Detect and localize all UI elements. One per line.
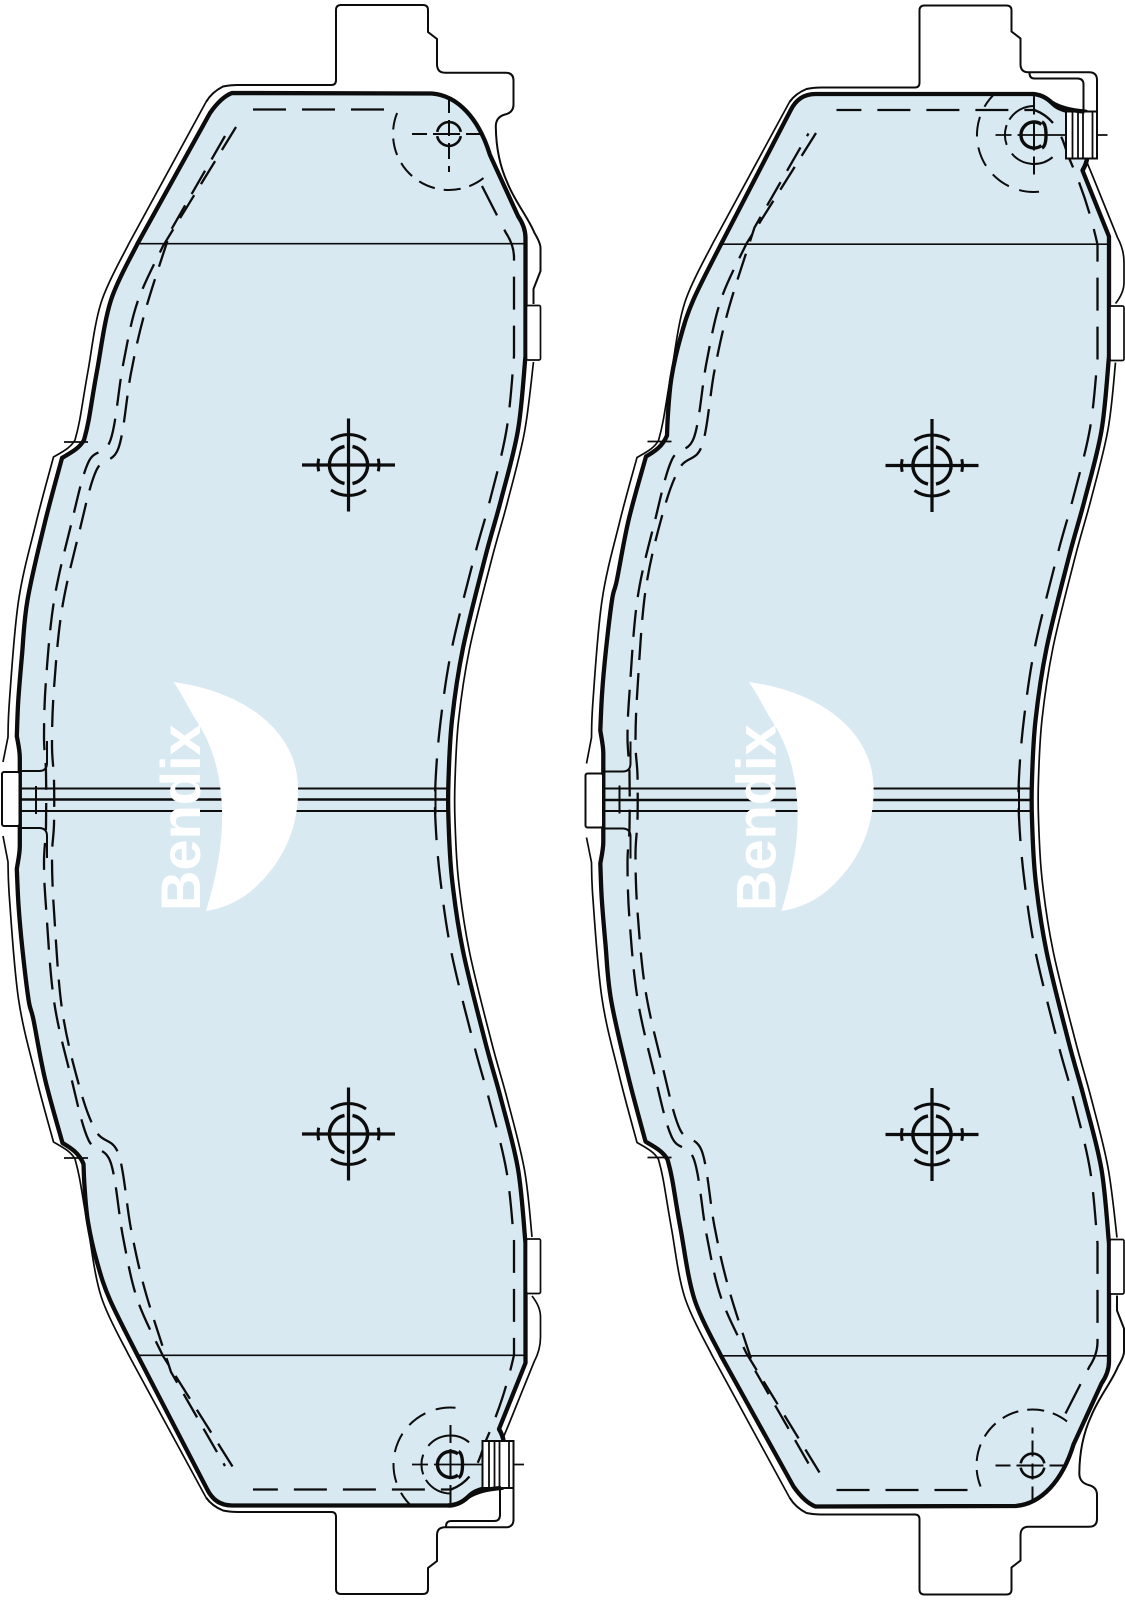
svg-text:Bendix: Bendix xyxy=(725,724,788,911)
svg-text:Bendix: Bendix xyxy=(149,724,212,911)
